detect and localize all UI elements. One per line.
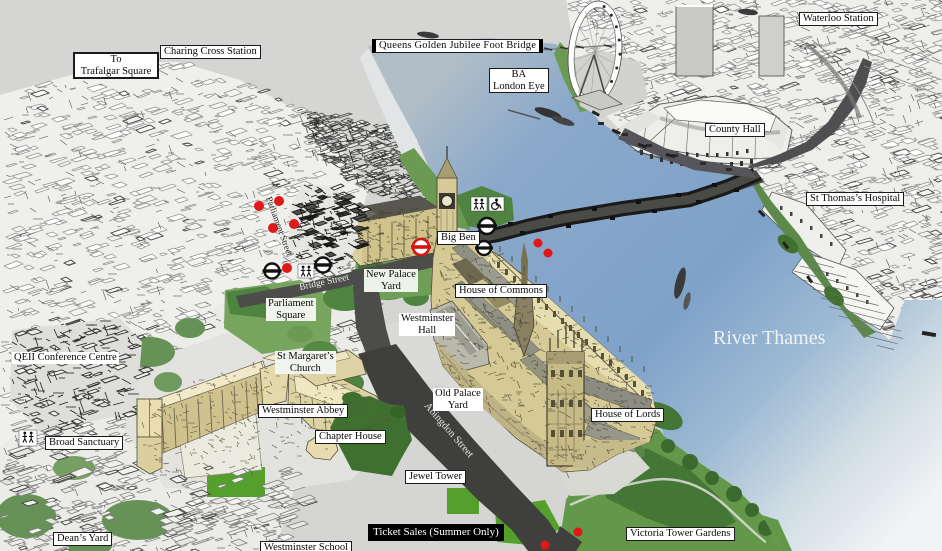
- svg-text:River Thames: River Thames: [713, 327, 826, 349]
